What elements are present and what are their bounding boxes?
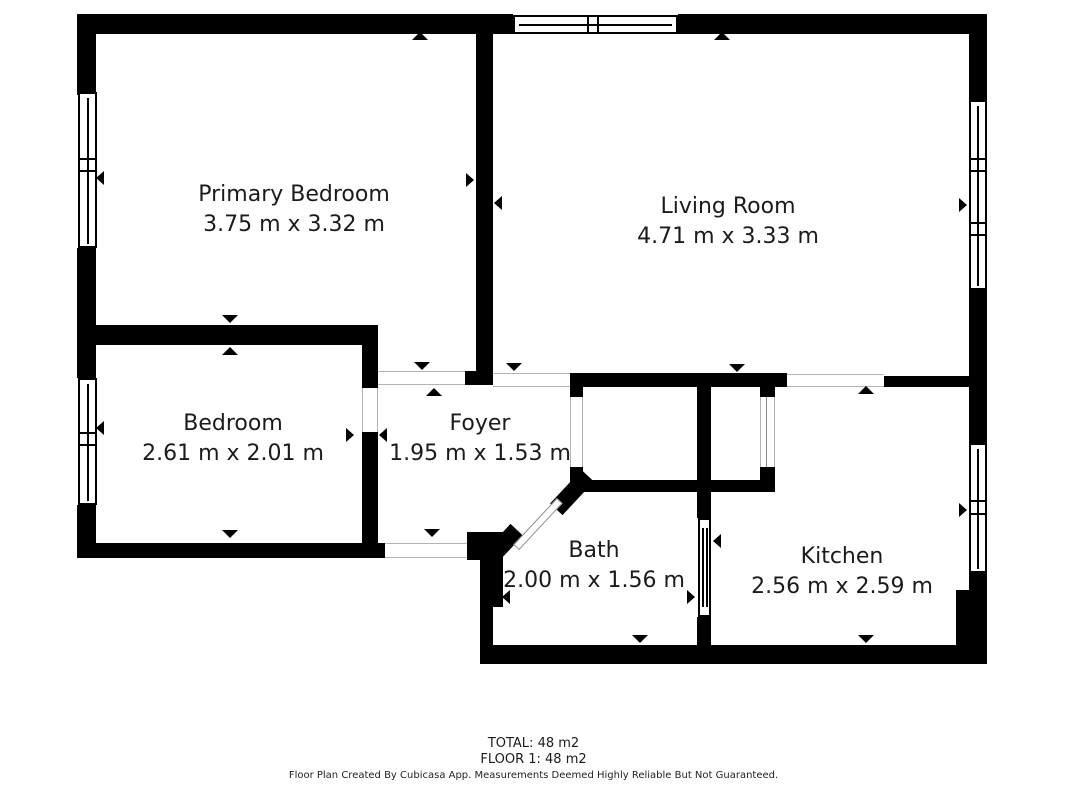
opening-marker-icon (466, 173, 474, 187)
wall-segment (480, 607, 493, 664)
window-mullion (587, 17, 589, 32)
window-mullion (971, 234, 985, 236)
room-name: Kitchen (751, 542, 933, 572)
window-bedroom (78, 378, 97, 505)
opening-marker-icon (222, 530, 238, 538)
opening-marker-icon (713, 534, 721, 548)
opening-marker-icon (858, 386, 874, 394)
room-label-kitchen: Kitchen 2.56 m x 2.59 m (751, 542, 933, 602)
window-mullion (80, 158, 95, 160)
window-living-room (969, 100, 987, 290)
opening-marker-icon (424, 529, 440, 537)
wall-segment (77, 248, 96, 378)
room-name: Primary Bedroom (198, 180, 390, 210)
opening-marker-icon (494, 196, 502, 210)
opening-marker-icon (687, 590, 695, 604)
opening-marker-icon (426, 388, 442, 396)
window-mullion (519, 24, 672, 26)
room-name: Bedroom (142, 409, 324, 439)
room-label-bath: Bath 2.00 m x 1.56 m (503, 536, 685, 596)
opening-marker-icon (222, 315, 238, 323)
room-dimensions: 1.95 m x 1.53 m (389, 439, 571, 469)
wall-segment (570, 480, 775, 492)
room-name: Living Room (637, 192, 819, 222)
area-summary: TOTAL: 48 m2 FLOOR 1: 48 m2 (0, 736, 1067, 768)
window-mullion (80, 432, 95, 434)
room-label-foyer: Foyer 1.95 m x 1.53 m (389, 409, 571, 469)
wall-segment (956, 590, 987, 645)
opening-marker-icon (222, 347, 238, 355)
wall-segment (678, 14, 987, 34)
wall-segment (697, 387, 711, 518)
wall-segment (480, 645, 987, 664)
room-dimensions: 3.75 m x 3.32 m (198, 210, 390, 240)
window-top (513, 15, 678, 34)
wall-segment (969, 14, 987, 100)
window-mullion (971, 222, 985, 224)
window-primary-bedroom (78, 92, 97, 248)
wall-segment (760, 387, 775, 397)
wall-segment (77, 14, 513, 34)
room-label-living-room: Living Room 4.71 m x 3.33 m (637, 192, 819, 252)
window-mullion (977, 106, 979, 286)
wall-segment (884, 376, 969, 387)
floor-area: FLOOR 1: 48 m2 (0, 752, 1067, 768)
opening-foyer-living-room (493, 373, 570, 387)
opening-marker-icon (346, 428, 354, 442)
window-kitchen (969, 443, 987, 573)
window-mullion (706, 528, 708, 607)
room-dimensions: 2.61 m x 2.01 m (142, 439, 324, 469)
closet-door-leaf (766, 397, 767, 467)
opening-closet-left-door (570, 397, 583, 467)
opening-marker-icon (414, 362, 430, 370)
room-dimensions: 4.71 m x 3.33 m (637, 222, 819, 252)
opening-marker-icon (379, 428, 387, 442)
opening-marker-icon (412, 32, 428, 40)
opening-marker-icon (96, 171, 104, 185)
opening-marker-icon (96, 421, 104, 435)
disclaimer-text: Floor Plan Created By Cubicasa App. Meas… (0, 770, 1067, 782)
room-dimensions: 2.00 m x 1.56 m (503, 566, 685, 596)
window-mullion (977, 449, 979, 569)
wall-segment (77, 14, 96, 95)
wall-segment (969, 290, 987, 443)
opening-marker-icon (959, 198, 967, 212)
window-mullion (971, 158, 985, 160)
window-mullion (597, 17, 599, 32)
wall-segment (570, 373, 787, 387)
wall-segment (77, 325, 375, 345)
wall-segment (465, 371, 493, 385)
opening-marker-icon (858, 635, 874, 643)
room-label-primary-bedroom: Primary Bedroom 3.75 m x 3.32 m (198, 180, 390, 240)
wall-segment (697, 617, 711, 664)
wall-segment (362, 325, 378, 388)
window-mullion (80, 444, 95, 446)
window-mullion (87, 384, 89, 501)
room-name: Foyer (389, 409, 571, 439)
window-mullion (971, 170, 985, 172)
opening-bedroom-door (362, 388, 378, 432)
wall-segment (476, 14, 493, 373)
room-name: Bath (503, 536, 685, 566)
window-mullion (971, 513, 985, 515)
wall-segment (77, 543, 385, 558)
wall-segment (362, 432, 378, 543)
window-mullion (971, 500, 985, 502)
opening-entry-door (385, 543, 467, 558)
opening-marker-icon (632, 635, 648, 643)
wall-segment (760, 467, 775, 480)
window-mullion (702, 528, 704, 607)
opening-marker-icon (729, 364, 745, 372)
opening-primary-bedroom-foyer (378, 371, 465, 385)
room-dimensions: 2.56 m x 2.59 m (751, 572, 933, 602)
opening-marker-icon (506, 363, 522, 371)
opening-marker-icon (959, 503, 967, 517)
total-area: TOTAL: 48 m2 (0, 736, 1067, 752)
room-label-bedroom: Bedroom 2.61 m x 2.01 m (142, 409, 324, 469)
window-bath-kitchen (698, 518, 711, 617)
window-mullion (80, 170, 95, 172)
opening-closet-right-door (760, 397, 775, 467)
opening-marker-icon (714, 32, 730, 40)
wall-segment (570, 387, 583, 397)
floor-plan-canvas: Primary Bedroom 3.75 m x 3.32 m Living R… (0, 0, 1067, 800)
